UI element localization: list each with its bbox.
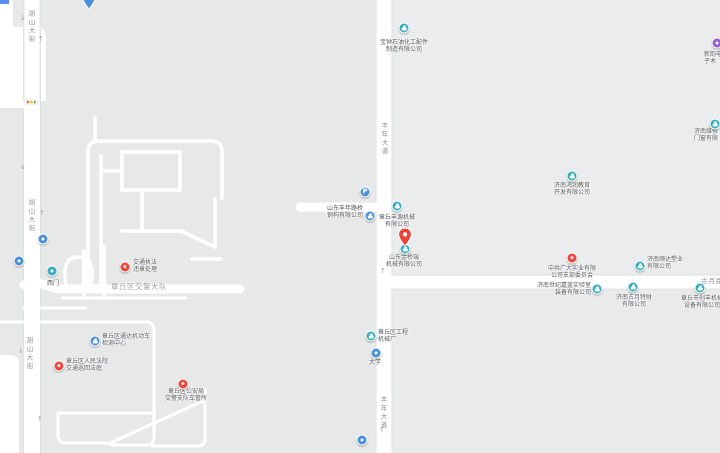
shiji-jialan-label[interactable]: 济南世纪嘉蓝实验室装备有限公司 [537, 283, 591, 296]
fengyuan-jixie-icon[interactable] [392, 201, 403, 212]
fengnian-luqiao-label-line: 钢构有限公司 [327, 213, 363, 220]
traffic-light-dot [30, 101, 33, 104]
shiji-jialan-label-line: 装备有限公司 [537, 290, 591, 297]
xinyun-dianzi-label-line: 子木 [704, 59, 720, 66]
ximen-gate-label-line: 西门 [47, 281, 59, 288]
fengnian-luqiao-label[interactable]: 山东丰年路桥钢构有限公司 [327, 206, 363, 219]
jinan-menchuang-icon[interactable] [710, 119, 720, 130]
guyue-tecai-label[interactable]: 济南古月特财有限公司 [616, 295, 652, 308]
daxue-stop-label[interactable]: 大学 [369, 360, 381, 367]
jinan-hongrun-label-line: 开发有限公司 [554, 190, 590, 197]
tongda-jiance-icon[interactable] [90, 336, 101, 347]
gongcheng-jixiechang-label-line: 机械厂 [378, 337, 408, 344]
xinyun-dianzi-icon[interactable] [712, 38, 720, 49]
xinyun-dianzi-label[interactable]: 新韵电子木 [704, 52, 720, 65]
one-way-arrow-icon: ↓ [20, 15, 26, 22]
guyue-tecai-label-line: 有限公司 [616, 302, 652, 309]
road-name-label: 胡山大街 [26, 10, 36, 44]
one-way-arrow-icon: ↑ [379, 427, 385, 434]
cutoff-top-pin-icon[interactable] [83, 0, 96, 9]
one-way-arrow-icon: ↓ [18, 348, 24, 355]
renmin-fayuan-icon[interactable]: ★ [54, 361, 65, 372]
traffic-light-dot [26, 101, 29, 104]
one-way-arrow-icon: ↑ [380, 268, 386, 275]
zhonggong-guangda-label-line: 公司支部委员会 [548, 273, 596, 280]
ximen-gate-icon[interactable] [47, 266, 58, 277]
one-way-arrow-icon: ↓ [20, 164, 26, 171]
cheguansuo-label-line: 交警支队车管所 [165, 396, 207, 403]
guyue-tecai-icon[interactable] [628, 282, 639, 293]
chuangfeng-jixie-label[interactable]: 章丘市创丰机械设备有限公司 [681, 296, 720, 309]
jinqiaorui-label-line: 机械有限公司 [386, 262, 422, 269]
shiji-jialan-icon[interactable] [592, 284, 603, 295]
chuangfeng-jixie-label-line: 设备有限公司 [681, 303, 720, 310]
tongda-jiance-label[interactable]: 章丘区通达机动车检测中心 [102, 334, 150, 347]
ximen-gate-label[interactable]: 西门 [47, 281, 59, 288]
area-label: 章丘区交警大队 [111, 281, 167, 292]
jinqiaorui-label[interactable]: 山东金桥瑞机械有限公司 [386, 255, 422, 268]
cheguansuo-icon[interactable]: ★ [178, 379, 189, 390]
one-way-arrow-icon: ↑ [37, 416, 43, 423]
road-name-label: 丰年大道 [378, 396, 388, 430]
fengyuan-jixie-label[interactable]: 章丘丰源机械有限公司 [379, 215, 415, 228]
shunda-suye-label-line: 有限公司 [647, 264, 683, 271]
gongcheng-jixiechang-icon[interactable] [366, 331, 377, 342]
jinan-hongrun-icon[interactable] [567, 171, 578, 182]
bus-stop-3-icon[interactable] [357, 435, 368, 446]
traffic-light-icon [25, 100, 38, 105]
road-name-label: 胡山大街 [26, 199, 36, 233]
map-canvas[interactable]: 宝钟石油化工配件制造有限公司新韵电子木济南维修门窗有限济南鸿润教育开发有限公司P… [0, 0, 720, 453]
shunda-suye-icon[interactable] [635, 261, 646, 272]
jiaotong-zhifa-icon[interactable]: ★ [120, 262, 131, 273]
road-name-label: 胡山大街 [24, 337, 34, 371]
fengnian-luqiao-icon[interactable] [365, 211, 376, 222]
cheguansuo-label[interactable]: 章丘区公安局交警支队车管所 [165, 389, 207, 402]
jinan-menchuang-label-line: 门窗有限 [694, 136, 718, 143]
daxue-stop-label-line: 大学 [369, 360, 381, 367]
road-name-label: 丰年大道 [379, 122, 389, 156]
poi-layer: 宝钟石油化工配件制造有限公司新韵电子木济南维修门窗有限济南鸿润教育开发有限公司P… [0, 0, 720, 453]
zhonggong-guangda-label[interactable]: 中共广大实业有限公司支部委员会 [548, 266, 596, 279]
tongda-jiance-label-line: 检测中心 [102, 341, 150, 348]
renmin-fayuan-label[interactable]: 章丘区人民法院交通巡回法庭 [66, 359, 108, 372]
jiaotong-zhifa-label-line: 违章处理 [133, 267, 157, 274]
traffic-light-dot [33, 101, 36, 104]
jinqiaorui-pin-icon[interactable] [399, 228, 412, 246]
jinan-hongrun-label[interactable]: 济南鸿润教育开发有限公司 [554, 183, 590, 196]
chuangfeng-jixie-icon[interactable] [695, 283, 706, 294]
bus-stop-2-icon[interactable] [14, 256, 25, 267]
parking-icon[interactable]: P [360, 187, 371, 198]
one-way-arrow-icon: ↑ [38, 36, 44, 43]
baozhong-shiyou-label-line: 制造有限公司 [380, 47, 428, 54]
bus-stop-1-icon[interactable] [38, 234, 49, 245]
shunda-suye-label[interactable]: 济南顺达塑业有限公司 [647, 257, 683, 270]
gongcheng-jixiechang-label[interactable]: 章丘区工程机械厂 [378, 330, 408, 343]
zhonggong-guangda-icon[interactable]: ★ [567, 253, 578, 264]
one-way-arrow-icon: ↑ [39, 210, 45, 217]
jiaotong-zhifa-label[interactable]: 交通执法违章处理 [133, 260, 157, 273]
daxue-stop-icon[interactable] [371, 348, 382, 359]
baozhong-shiyou-label[interactable]: 宝钟石油化工配件制造有限公司 [380, 40, 428, 53]
baozhong-shiyou-icon[interactable] [399, 23, 410, 34]
jinan-menchuang-label[interactable]: 济南维修门窗有限 [694, 129, 718, 142]
renmin-fayuan-label-line: 交通巡回法庭 [66, 366, 108, 373]
edge-chip-icon [0, 0, 9, 4]
